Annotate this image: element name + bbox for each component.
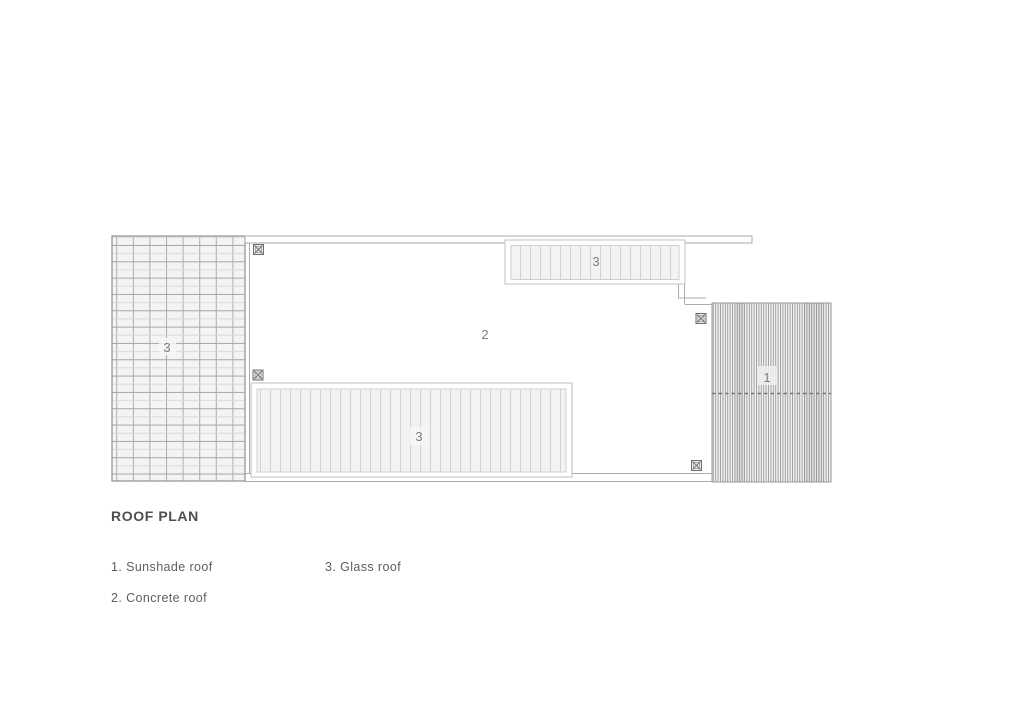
sunshade-roof: 1: [712, 303, 831, 482]
roof-plan-page: 3 2 3 3: [0, 0, 1024, 724]
glass-roof-left-label: 3: [163, 340, 170, 355]
legend-item-glass-roof: 3. Glass roof: [325, 560, 401, 574]
column-marker-icon: [254, 245, 264, 255]
glass-roof-bottom: 3: [251, 383, 572, 477]
glass-roof-left: 3: [112, 236, 245, 481]
drawing-title: ROOF PLAN: [111, 508, 199, 524]
column-marker-icon: [253, 370, 263, 380]
legend-item-sunshade-roof: 1. Sunshade roof: [111, 560, 213, 574]
glass-roof-bottom-label: 3: [415, 429, 422, 444]
glass-roof-top-label: 3: [592, 254, 599, 269]
glass-roof-top: 3: [505, 240, 685, 284]
roof-plan-drawing: 3 2 3 3: [0, 0, 1024, 724]
concrete-roof-label: 2: [481, 327, 488, 342]
sunshade-roof-label: 1: [763, 370, 770, 385]
legend-item-concrete-roof: 2. Concrete roof: [111, 591, 207, 605]
column-marker-icon: [696, 314, 706, 324]
column-marker-icon: [692, 461, 702, 471]
